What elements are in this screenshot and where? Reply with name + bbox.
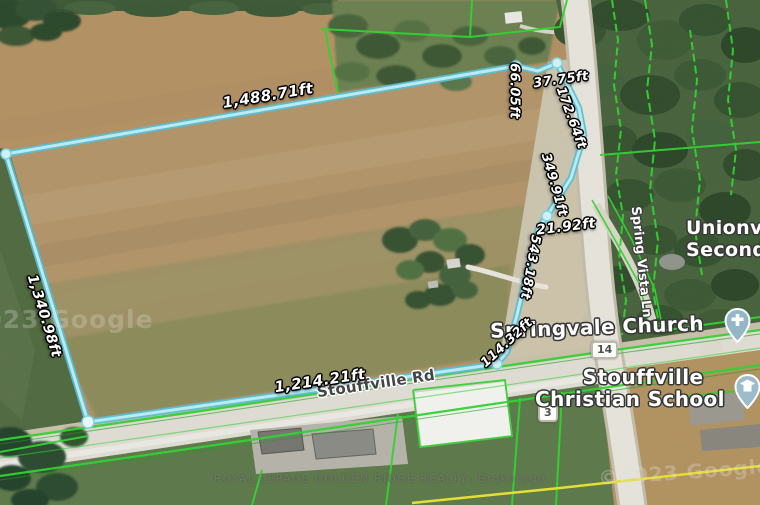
church-pin[interactable] — [724, 308, 751, 343]
google-watermark-left: ©2023 Google — [0, 305, 154, 334]
brokerage-watermark: ROYAL LEPAGE GOLDEN RIDGE REALTY, Broker… — [214, 473, 547, 485]
school-pin-icon — [734, 374, 760, 409]
poi-label-secondary-line1: Unionville — [686, 219, 760, 238]
measurement-seg-66: 66.05ft — [508, 63, 521, 119]
poi-label-school-line1: Stouffville — [583, 367, 704, 387]
school-pin[interactable] — [734, 374, 760, 409]
poi-label-secondary-line2: Secondary — [686, 241, 760, 260]
satellite-map-canvas[interactable]: 1,488.71ft 66.05ft 37.75ft 172.64ft 349.… — [0, 0, 760, 505]
church-pin-icon — [724, 308, 751, 343]
route-badge-14: 14 — [591, 341, 618, 359]
poi-label-school-line2: Christian School — [535, 389, 725, 409]
